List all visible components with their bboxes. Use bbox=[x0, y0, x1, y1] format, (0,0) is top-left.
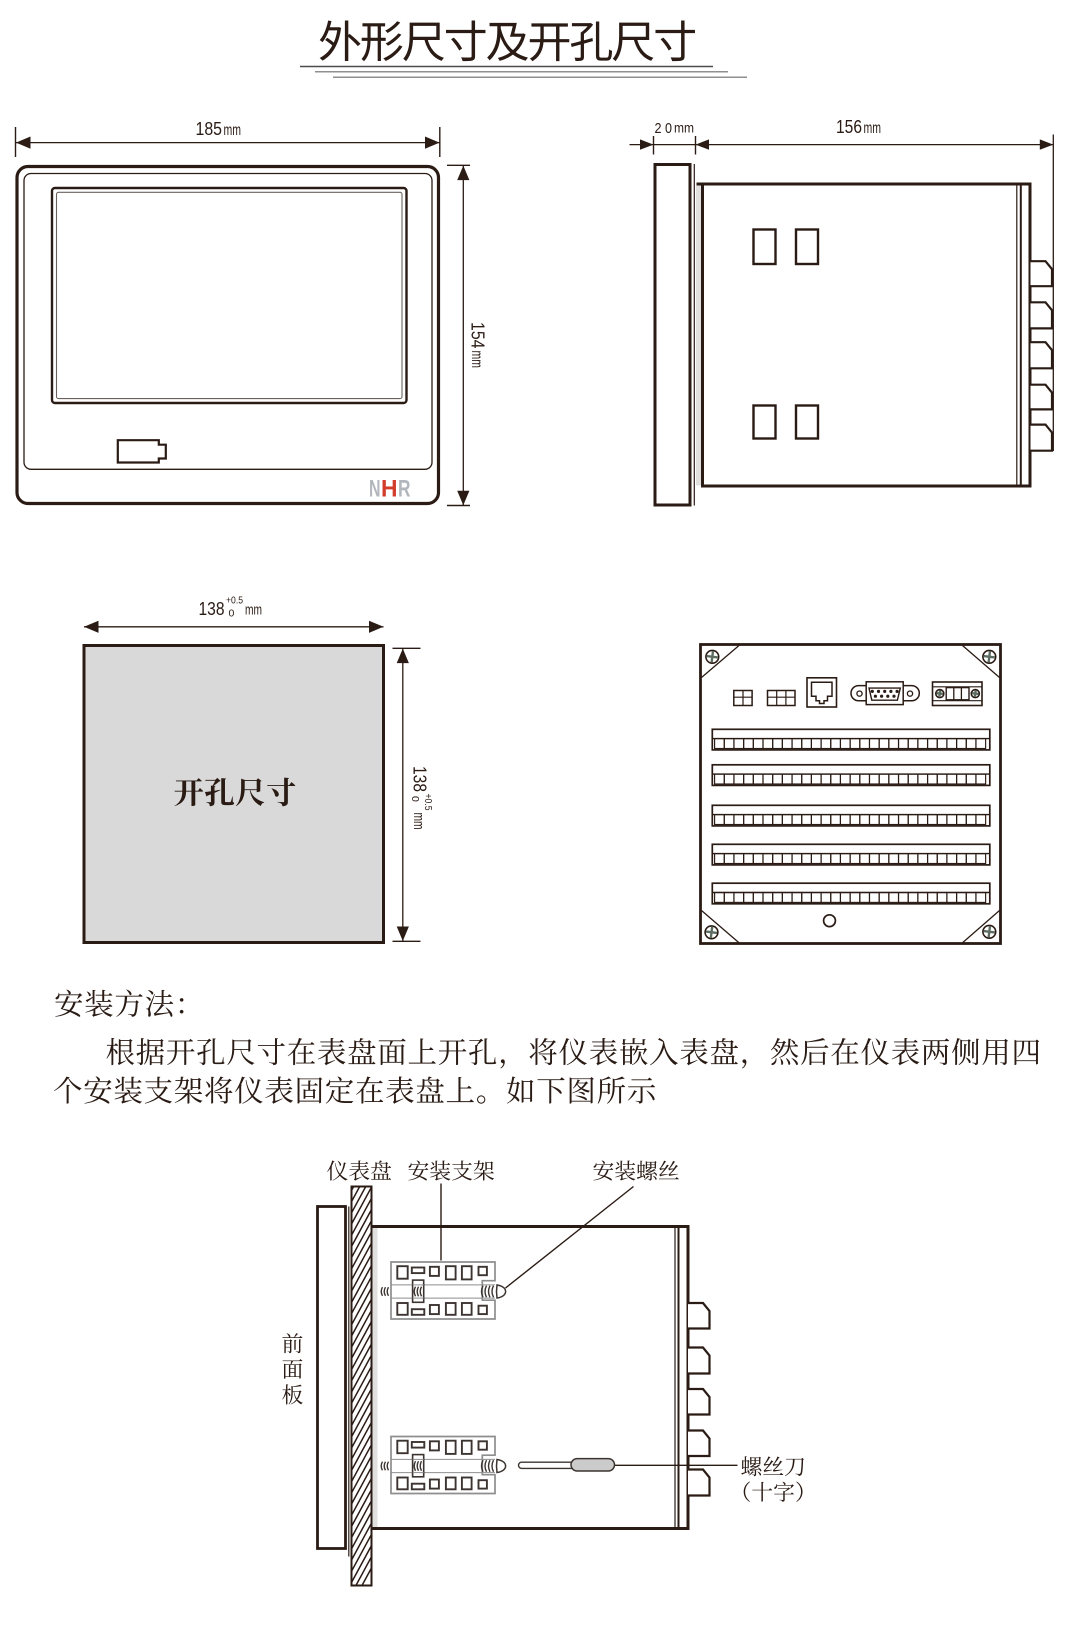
svg-text:N: N bbox=[369, 476, 381, 503]
svg-text:154: 154 bbox=[468, 322, 489, 349]
svg-text:0: 0 bbox=[229, 608, 235, 620]
svg-text:H: H bbox=[381, 476, 398, 503]
svg-text:mm: mm bbox=[224, 122, 242, 139]
svg-text:mm: mm bbox=[410, 813, 427, 830]
svg-text:138: 138 bbox=[410, 766, 430, 792]
svg-text:+0.5: +0.5 bbox=[226, 595, 243, 607]
svg-text:mm: mm bbox=[674, 121, 694, 136]
svg-text:mm: mm bbox=[468, 351, 485, 369]
svg-text:mm: mm bbox=[864, 120, 882, 137]
svg-text:156: 156 bbox=[836, 116, 862, 137]
svg-text:2 0: 2 0 bbox=[655, 120, 673, 137]
svg-text:138: 138 bbox=[199, 599, 225, 619]
svg-text:0: 0 bbox=[409, 796, 421, 802]
svg-text:+0.5: +0.5 bbox=[422, 794, 434, 811]
svg-text:185: 185 bbox=[196, 118, 223, 139]
svg-text:mm: mm bbox=[245, 602, 262, 619]
svg-text:R: R bbox=[398, 476, 411, 503]
